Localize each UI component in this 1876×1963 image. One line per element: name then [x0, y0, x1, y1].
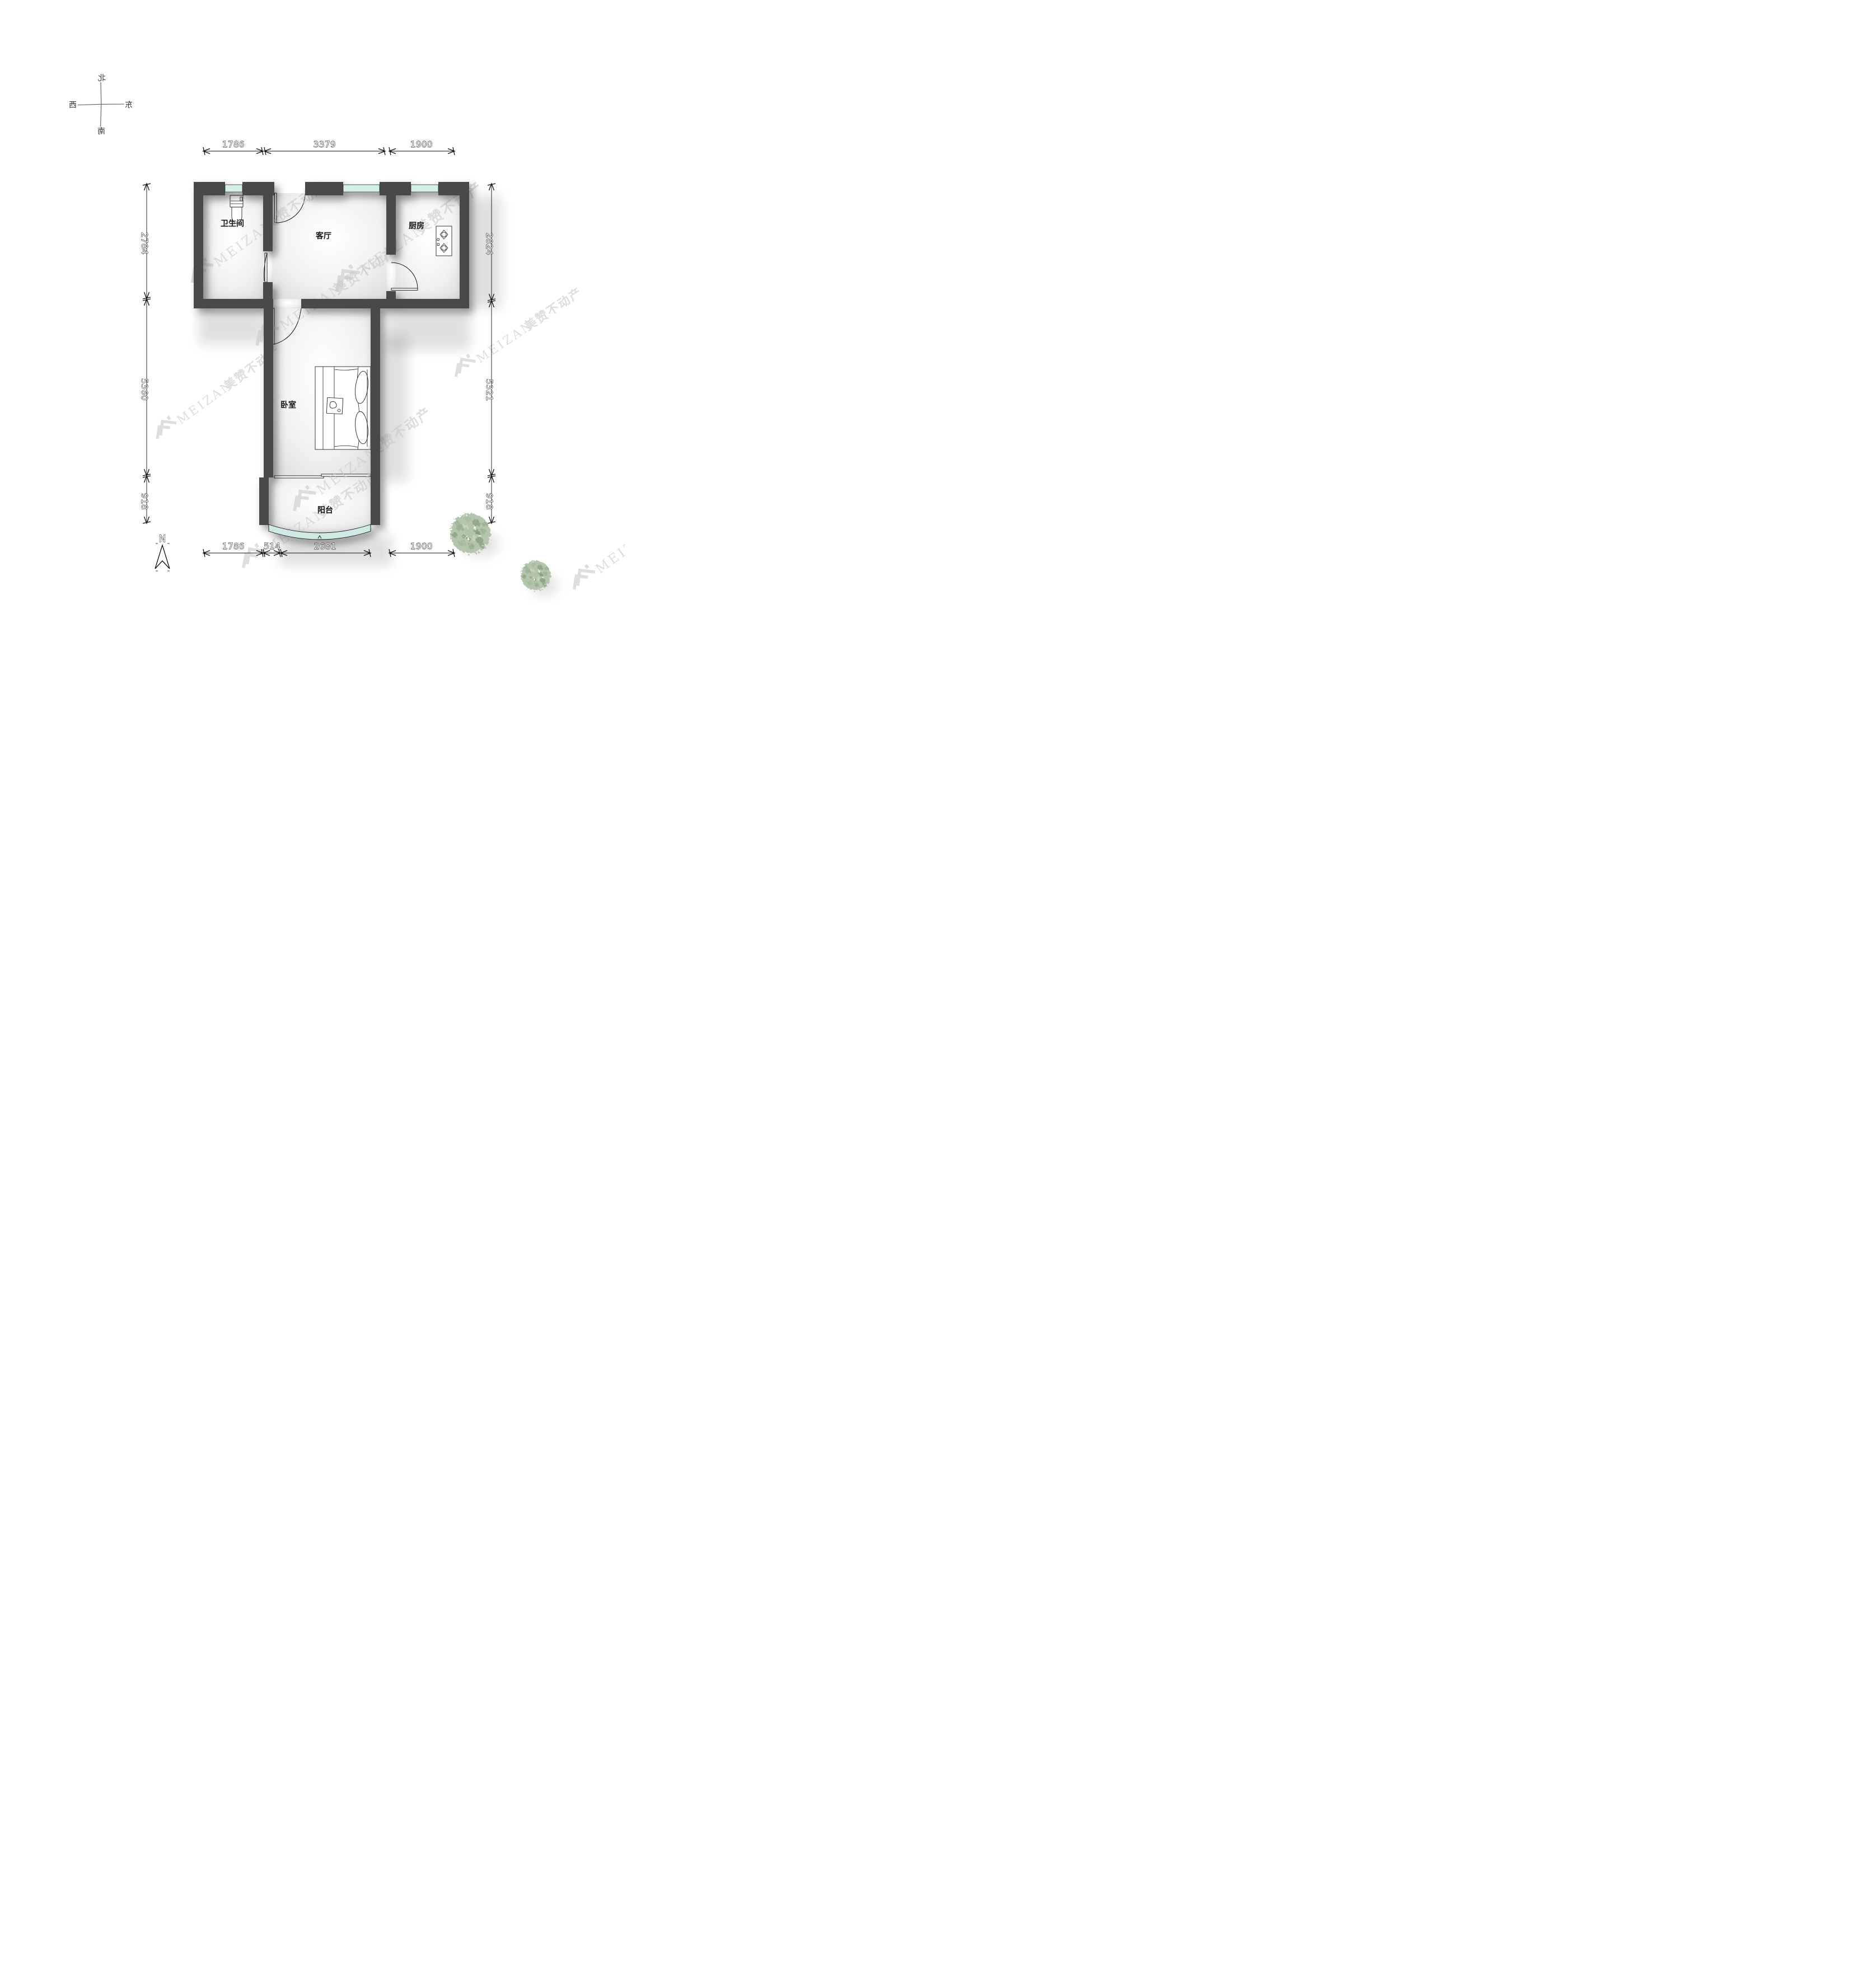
- wall-bath-living: [263, 193, 273, 251]
- dim-label-bottom-3: 2681: [314, 541, 336, 551]
- wall-outer-right: [460, 184, 469, 308]
- compass-west: 西: [69, 101, 77, 110]
- floor-plan-page: MEIZAN 美赞不动产: [0, 0, 625, 654]
- dim-label-bottom-2: 514: [264, 541, 280, 551]
- dim-label-right-2: 5321: [484, 379, 494, 401]
- compass-north: 北: [98, 74, 106, 83]
- bed-icon: [315, 367, 371, 449]
- wall-band-left: [194, 299, 273, 308]
- room-label-living: 客厅: [315, 231, 331, 241]
- wall-band-right: [301, 299, 460, 308]
- living-window: [343, 185, 380, 192]
- stove-icon: [436, 226, 452, 256]
- dim-label-bottom-4: 1900: [410, 541, 433, 551]
- floor-plan-canvas: MEIZAN 美赞不动产: [0, 0, 625, 654]
- wall-outer-left: [194, 184, 203, 308]
- north-arrow-icon: N: [155, 533, 170, 571]
- bathroom-window: [225, 185, 242, 192]
- wall-bedroom-right: [371, 299, 380, 477]
- wall-balcony-left: [259, 477, 269, 525]
- tree-icon: [521, 560, 550, 590]
- landscape: [450, 513, 558, 595]
- dim-label-left-1: 2784: [139, 232, 149, 255]
- compass-icon: 北 南 西 东: [69, 74, 133, 136]
- dim-label-left-3: 918: [139, 493, 149, 510]
- north-arrow-label: N: [159, 533, 166, 545]
- wall-balcony-right: [371, 477, 380, 525]
- dim-label-left-2: 5360: [139, 378, 149, 401]
- room-label-bathroom: 卫生间: [221, 219, 244, 228]
- compass-south: 南: [97, 127, 105, 136]
- dim-label-top-2: 3379: [314, 139, 336, 149]
- compass-east: 东: [125, 101, 133, 110]
- dim-label-bottom-1: 1786: [222, 541, 245, 551]
- dim-label-right-1: 2824: [484, 233, 494, 255]
- dim-label-right-3: 918: [484, 493, 494, 510]
- wall-living-kitchen: [386, 193, 396, 255]
- dim-label-top-3: 1900: [410, 139, 433, 149]
- dim-label-top-1: 1786: [222, 139, 245, 149]
- room-label-balcony: 阳台: [317, 505, 333, 515]
- kitchen-window: [411, 185, 438, 192]
- room-label-kitchen: 厨房: [409, 221, 424, 231]
- wall-bedroom-left: [264, 299, 273, 477]
- tree-icon: [450, 513, 490, 553]
- room-label-bedroom: 卧室: [280, 400, 296, 410]
